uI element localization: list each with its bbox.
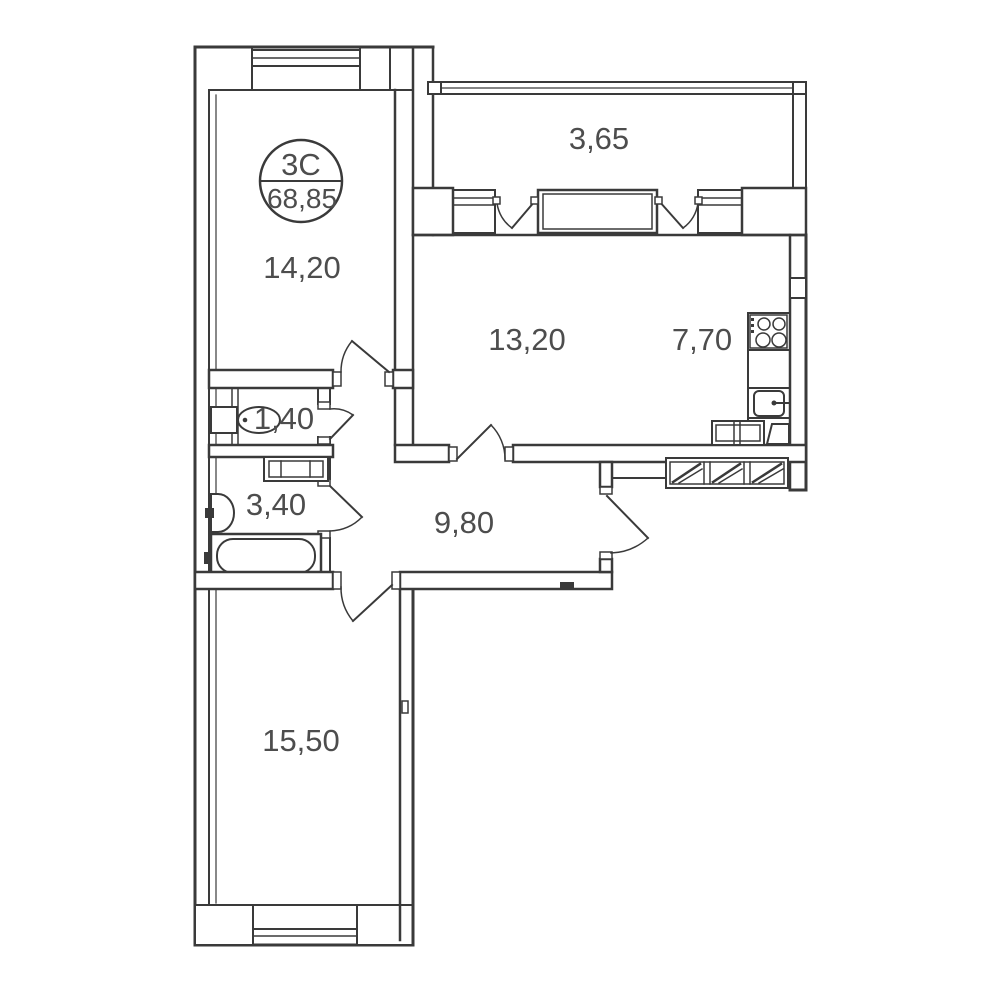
- wardrobe-closet: [666, 458, 788, 488]
- hallway-bottom-wall: [195, 572, 612, 589]
- apartment-type-label: 3C: [281, 147, 321, 182]
- balcony-door-left: [493, 197, 538, 228]
- bedroom-2-door: [333, 572, 400, 621]
- bathroom-door: [318, 479, 362, 538]
- bedroom-1-door: [333, 341, 393, 386]
- floor-plan-page: 3C 68,85 3,65 14,20 13,20 7,70 1,40 3,40…: [0, 0, 1000, 1000]
- room-label-living: 13,20: [488, 322, 566, 357]
- entrance-wall: [600, 462, 666, 572]
- washing-machine-fixture: [264, 457, 328, 481]
- living-room-window-left: [453, 190, 495, 233]
- room-label-kitchen: 7,70: [672, 322, 732, 357]
- window-bedroom-1: [252, 50, 360, 66]
- room-label-hallway: 9,80: [434, 505, 494, 540]
- balcony-door-right: [655, 197, 702, 228]
- room-label-bedroom-2: 15,50: [262, 723, 340, 758]
- room-label-balcony: 3,65: [569, 121, 629, 156]
- room-label-bedroom-1: 14,20: [263, 250, 341, 285]
- room-label-wc: 1,40: [254, 401, 314, 436]
- living-room-window-center: [538, 190, 657, 233]
- wc-door: [318, 402, 353, 444]
- kitchen-drainer: [767, 424, 789, 444]
- room-label-bathroom: 3,40: [246, 487, 306, 522]
- entrance-door: [607, 496, 648, 553]
- stove-fixture: [750, 315, 787, 348]
- window-bedroom-2: [253, 905, 357, 945]
- apartment-total-area: 68,85: [267, 183, 337, 214]
- kitchen-sink-fixture: [754, 391, 790, 416]
- kitchen-window: [698, 190, 742, 233]
- floor-plan-drawing: 3C 68,85 3,65 14,20 13,20 7,70 1,40 3,40…: [0, 0, 1000, 1000]
- kitchen-cabinet-row: [712, 421, 764, 445]
- living-room-door: [449, 425, 513, 461]
- apartment-badge: 3C 68,85: [260, 140, 342, 222]
- balcony-parapet-wall: [413, 188, 806, 235]
